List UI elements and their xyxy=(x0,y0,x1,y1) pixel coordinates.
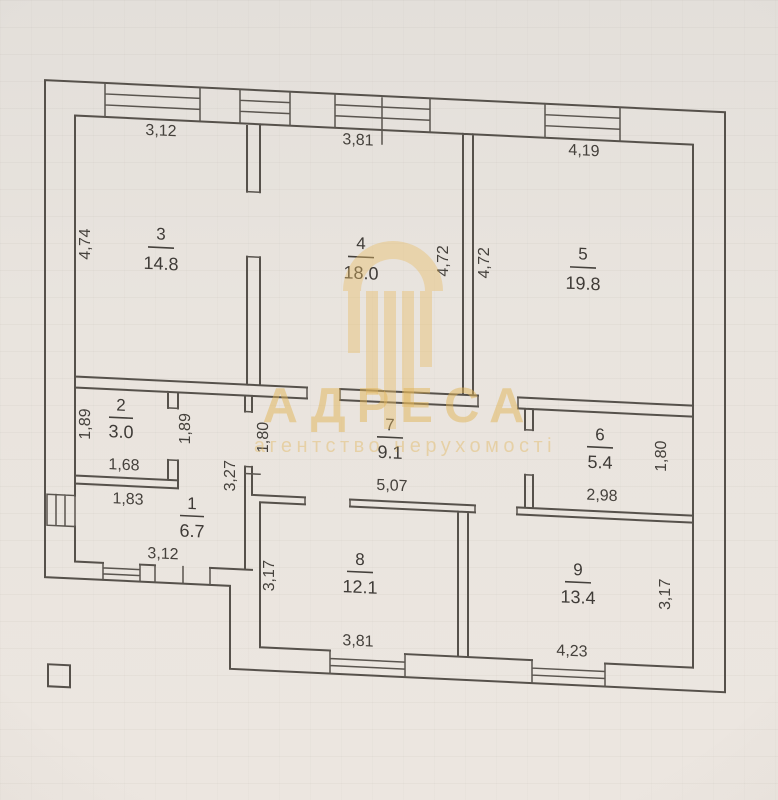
legend-square xyxy=(48,664,70,687)
room-2-number: 2 xyxy=(116,395,125,414)
dim-room2-left: 1,89 xyxy=(77,408,94,440)
room-3-area: 14.8 xyxy=(143,253,178,275)
room-1-underline xyxy=(180,515,204,516)
room-4-area: 18.0 xyxy=(343,262,378,284)
outer-wall-outline xyxy=(45,80,725,692)
dim-room9-bottom: 4,23 xyxy=(556,642,587,660)
dim-room9-right: 3,17 xyxy=(657,578,674,610)
dim-room1-right: 3,27 xyxy=(222,460,239,492)
dim-room7-left: 1,80 xyxy=(255,421,272,453)
room-4-number: 4 xyxy=(356,234,365,253)
room-8-area: 12.1 xyxy=(342,576,377,598)
entrance-porch xyxy=(47,494,75,526)
room-5-area: 19.8 xyxy=(565,273,600,295)
dim-room4-top: 3,81 xyxy=(342,131,373,149)
room-7-area: 9.1 xyxy=(377,442,402,463)
room-7-underline xyxy=(377,437,403,438)
room-2-underline xyxy=(109,417,133,418)
room-9-area: 13.4 xyxy=(560,586,595,608)
dim-room1-inner-width: 1,83 xyxy=(112,490,143,508)
dim-room3-left: 4,74 xyxy=(77,228,94,260)
room-9-underline xyxy=(565,582,591,583)
dim-room2-right: 1,89 xyxy=(177,413,194,445)
room-5-underline xyxy=(570,267,596,268)
room-2-area: 3.0 xyxy=(108,421,133,442)
dim-room7-bottom: 5,07 xyxy=(376,477,407,495)
dim-room8-left: 3,17 xyxy=(261,560,278,592)
room-6-underline xyxy=(587,447,613,448)
dim-room6-bottom: 2,98 xyxy=(586,487,617,505)
dim-room4-right: 4,72 xyxy=(435,245,452,277)
plan-geometry: 3,12 3,81 4,19 4,74 4,72 4,72 3 14.8 4 1… xyxy=(45,80,725,718)
room-7-number: 7 xyxy=(385,415,394,434)
interior-walls xyxy=(75,116,693,668)
room-8-underline xyxy=(347,571,373,572)
room-3-number: 3 xyxy=(156,224,165,243)
room-6-number: 6 xyxy=(595,425,604,444)
room-4-underline xyxy=(348,256,374,257)
room-9-number: 9 xyxy=(573,560,582,579)
dim-room5-top: 4,19 xyxy=(568,142,599,160)
dim-room5-left: 4,72 xyxy=(476,247,493,279)
floor-plan-drawing: 3,12 3,81 4,19 4,74 4,72 4,72 3 14.8 4 1… xyxy=(0,0,778,800)
dim-room6-right: 1,80 xyxy=(653,440,670,472)
dim-room1-bottom: 3,12 xyxy=(147,545,178,563)
room-8-number: 8 xyxy=(355,550,364,569)
dim-room2-bottom: 1,68 xyxy=(108,456,139,474)
room-6-area: 5.4 xyxy=(587,452,612,473)
door-jambs xyxy=(155,87,533,600)
dim-room3-top: 3,12 xyxy=(145,122,176,140)
room-1-number: 1 xyxy=(187,494,196,513)
room-5-number: 5 xyxy=(578,244,587,263)
dim-room8-bottom: 3,81 xyxy=(342,632,373,650)
room-1-area: 6.7 xyxy=(179,520,204,541)
room-3-underline xyxy=(148,247,174,248)
